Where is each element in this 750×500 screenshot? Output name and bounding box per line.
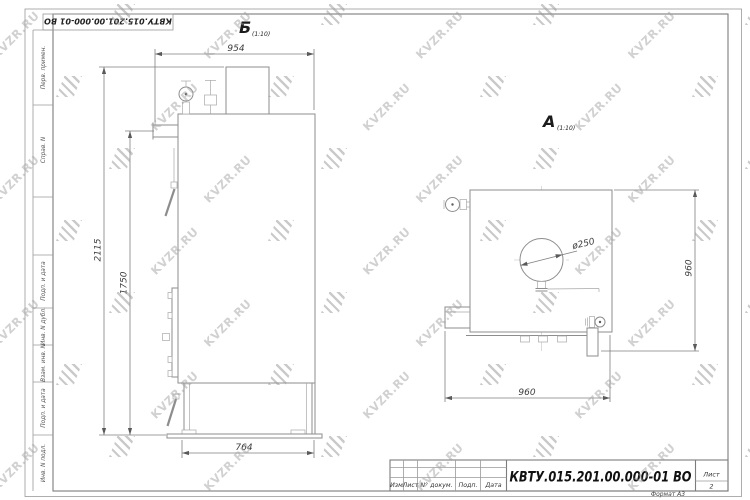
tb-col-izm: Изм: [390, 482, 403, 489]
sidebar-label-vzam-inv: Взам. инв. N: [41, 344, 47, 382]
view-b-drawing: [153, 67, 322, 438]
view-a-label: А: [541, 112, 555, 131]
dim-bottom-width: 764: [235, 443, 252, 453]
tb-col-data: Дата: [484, 482, 501, 489]
view-a-drawing: [444, 186, 612, 356]
tb-col-n-dokum: N° докум.: [420, 481, 452, 489]
top-stamp-doc-number: КВТУ.015.201.00.000-01 ВО: [44, 17, 172, 26]
view-b-scale: (1:10): [252, 31, 270, 38]
dim-top-width: 954: [227, 44, 244, 54]
title-block: Изм Лист N° докум. Подп. Дата КВТУ.015.2…: [390, 460, 728, 498]
sidebar-label-perv-primen: Перв. примен.: [41, 46, 47, 90]
drawing-sheet: Перв. примен. Справ. N Подп. и дата Инв.…: [0, 0, 750, 500]
sidebar-label-podp-data-1: Подп. и дата: [41, 261, 47, 301]
sheet-frame: [25, 9, 742, 497]
drawing-svg: Перв. примен. Справ. N Подп. и дата Инв.…: [0, 0, 750, 500]
view-b-label: Б: [239, 18, 251, 37]
dim-total-height: 2115: [94, 238, 104, 261]
sidebar-label-podp-data-2: Подп. и дата: [41, 388, 47, 428]
dim-a-height: 960: [685, 259, 695, 276]
tb-sheet-label: Лист: [702, 471, 720, 479]
sidebar-label-sprav-n: Справ. N: [41, 136, 47, 163]
view-a-scale: (1:10): [557, 125, 575, 132]
tb-col-podp: Подп.: [458, 482, 477, 489]
top-stamp: КВТУ.015.201.00.000-01 ВО: [43, 14, 173, 30]
tb-sheet-number: 2: [709, 483, 713, 491]
sidebar-label-inv-podl: Инв. N подл.: [41, 444, 47, 482]
tb-col-list: Лист: [402, 482, 419, 489]
tb-doc-number: КВТУ.015.201.00.000-01 ВО: [510, 470, 692, 486]
dim-body-height: 1750: [120, 271, 130, 294]
tb-format: Формат А3: [651, 491, 685, 498]
sidebar-label-inv-dubl: Инв. N дубл.: [41, 307, 47, 345]
view-b-label-group: Б (1:10): [239, 18, 270, 38]
gost-sidebar: Перв. примен. Справ. N Подп. и дата Инв.…: [33, 30, 53, 491]
view-a-label-group: А (1:10): [541, 112, 575, 132]
dim-a-width: 960: [518, 388, 535, 398]
